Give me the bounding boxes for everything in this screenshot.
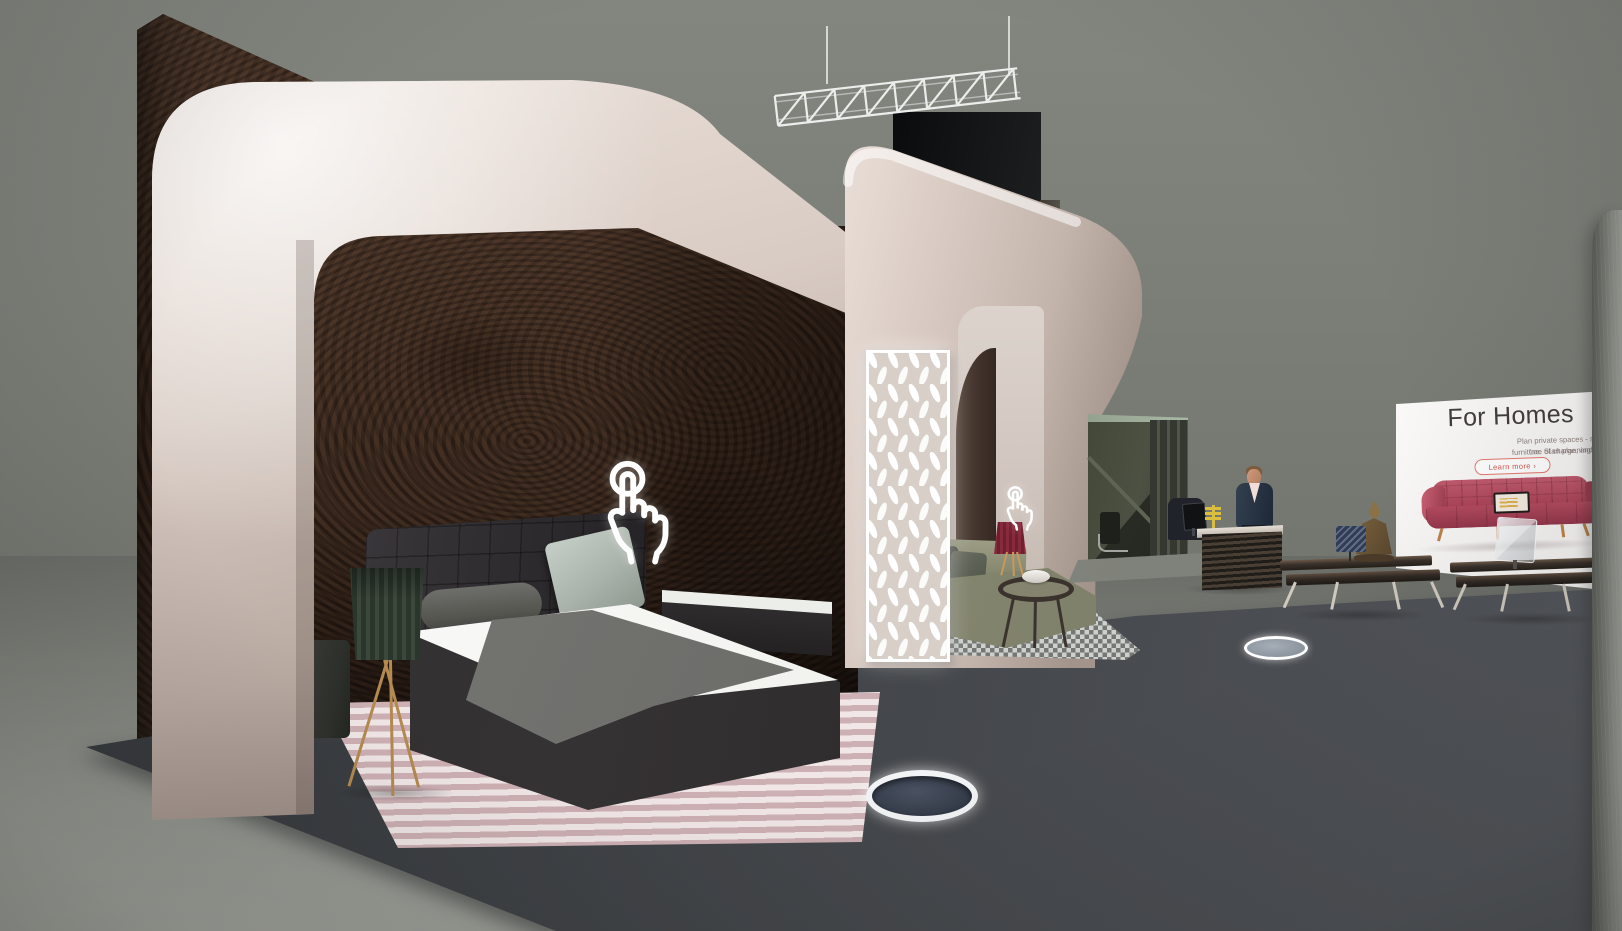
teleport-disc-near[interactable] xyxy=(866,770,978,822)
foreground-column xyxy=(1592,210,1622,931)
yellow-stand-bar xyxy=(1205,507,1221,510)
table-slab xyxy=(1286,569,1440,585)
buddha-base xyxy=(1354,554,1394,562)
table-leg xyxy=(1330,582,1338,610)
bedroom-arch-frame xyxy=(140,70,870,830)
screen-description: Plan private spaces - simple, free of ch… xyxy=(1403,432,1619,451)
tap-hand-icon-bedroom[interactable] xyxy=(592,458,676,570)
glass-cube-stem xyxy=(1513,560,1517,569)
meeting-booth xyxy=(1088,416,1188,568)
table-leg xyxy=(1562,584,1570,612)
desk-monitor xyxy=(1182,502,1207,531)
artwork-stand xyxy=(1349,552,1351,561)
buddha-topknot xyxy=(1372,502,1377,508)
showroom-scene: For Homes Plan private spaces - simple, … xyxy=(0,0,1622,931)
tablet-art xyxy=(1500,498,1518,508)
yellow-stand-bar xyxy=(1205,512,1221,515)
sofa-image-tablet xyxy=(1493,491,1530,513)
screen-title: For Homes xyxy=(1398,398,1622,435)
leaf-divider-panel xyxy=(866,350,950,662)
booth-chair-frame xyxy=(1098,534,1128,552)
sofa-image-leg xyxy=(1437,528,1443,541)
sofa-image-leg xyxy=(1560,524,1565,537)
booth-slats xyxy=(1150,420,1188,570)
tap-hand-icon-lounge[interactable] xyxy=(1000,484,1036,534)
reception-desk xyxy=(1202,532,1282,591)
learn-more-button[interactable]: Learn more › xyxy=(1474,457,1550,476)
table-leg xyxy=(1500,584,1508,612)
table-leg xyxy=(1392,582,1400,610)
decor-bowl xyxy=(1022,570,1050,583)
glass-cube-facet xyxy=(1496,518,1537,563)
teleport-disc-far[interactable] xyxy=(1244,636,1308,660)
artwork-frame xyxy=(1336,526,1366,552)
desk-monitor-stand xyxy=(1192,528,1195,536)
table-leg xyxy=(1430,581,1444,608)
yellow-stand-bar xyxy=(1205,517,1221,520)
glass-cube-lamp xyxy=(1495,517,1538,564)
sofa-image-leg xyxy=(1583,523,1590,536)
table-slab xyxy=(1456,571,1610,587)
